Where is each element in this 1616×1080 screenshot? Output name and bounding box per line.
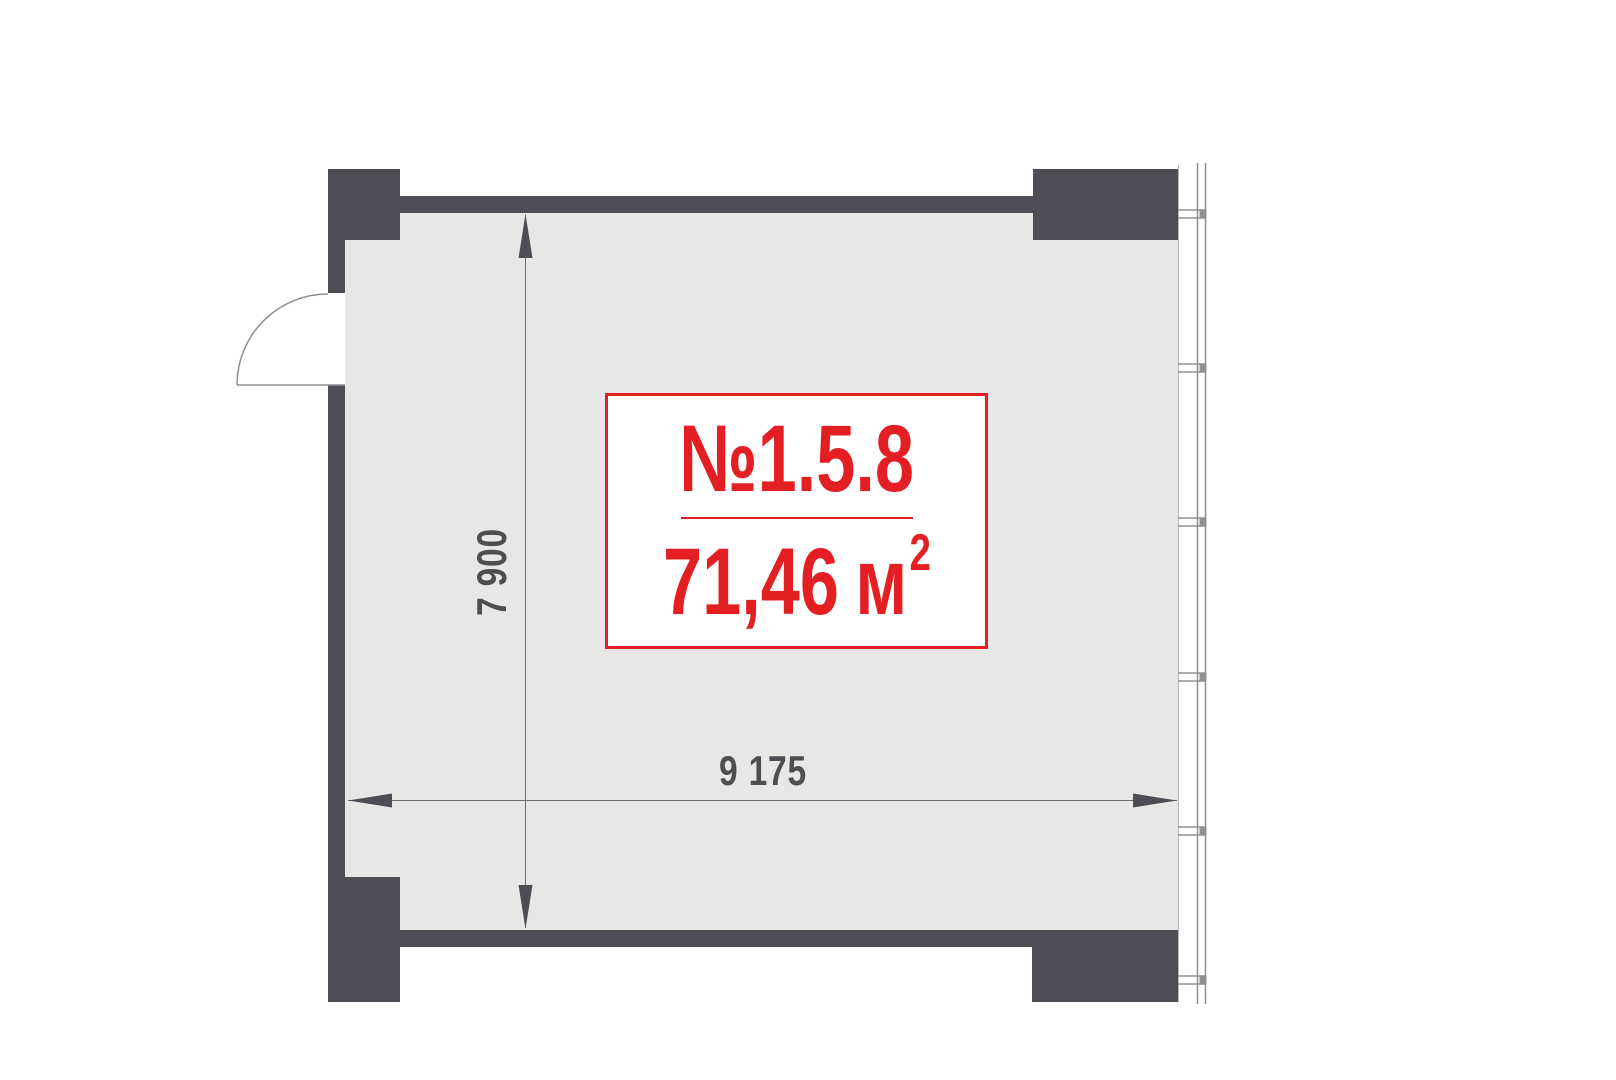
- unit-number: №1.5.8: [679, 412, 914, 507]
- unit-area: 71,46 м 2: [663, 535, 931, 630]
- window-mullion-tick: [1178, 976, 1207, 984]
- unit-label-box[interactable]: №1.5.8 71,46 м 2: [605, 393, 988, 649]
- window-mullion-tick: [1178, 518, 1207, 526]
- unit-area-value: 71,46: [663, 535, 839, 630]
- unit-divider: [681, 517, 913, 519]
- unit-area-unit: м: [855, 535, 907, 630]
- unit-area-superscript: 2: [909, 527, 930, 579]
- floorplan-canvas: 9 175 7 900 №1.5.8 71,46 м 2: [0, 0, 1616, 1080]
- dimension-label-width: 9 175: [635, 750, 891, 792]
- window-mullion-tick: [1178, 827, 1207, 835]
- dimension-line-height: [519, 214, 533, 929]
- window-wall: [1178, 163, 1207, 1004]
- window-mullion-tick: [1178, 364, 1207, 372]
- dimension-label-height: 7 900: [471, 444, 513, 700]
- window-mullion-tick: [1178, 210, 1207, 218]
- window-mullion-tick: [1178, 673, 1207, 681]
- door-symbol: [237, 294, 345, 385]
- dimension-line-width: [348, 794, 1177, 808]
